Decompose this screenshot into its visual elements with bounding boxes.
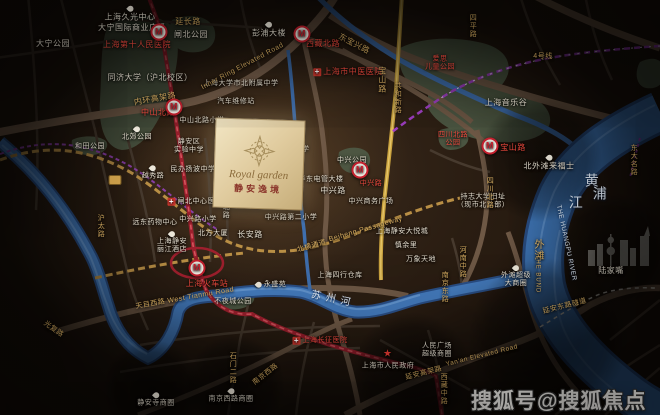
- river-suzhou-label-text: 苏州河: [310, 289, 357, 310]
- station-baoshan-label-text: 宝山路: [500, 143, 526, 153]
- poi-jingan-experimental-school: 静安区 实验中学: [174, 139, 204, 156]
- pin-icon: [152, 391, 160, 399]
- metro-station-baoshan: [482, 137, 499, 154]
- road-yanan-elevated-en: Yan'an Elevated Road: [445, 343, 519, 368]
- park-hetian-label: 和田公园: [75, 143, 105, 151]
- poi-jiuguang-center-text: 上海久光中心: [105, 13, 156, 23]
- road-xizang-middle-text: 西藏中路: [439, 373, 447, 405]
- park-zhabei-label-text: 闸北公园: [174, 30, 208, 40]
- poi-city-government: 上海市人民政府: [362, 351, 415, 370]
- park-beijiao-label-text: 北郊公园: [122, 133, 152, 141]
- road-tianmu-west-text: 天目西路 West Tianmu Road: [135, 286, 235, 312]
- metro-station-railway: [189, 260, 206, 277]
- poi-jingan-temple-cbd-text: 静安寺商圈: [137, 399, 175, 407]
- poi-chizhi-university-text: 持志大学旧址 （现市北总部）: [457, 194, 510, 211]
- poi-joy-city: 上海静安大悦城: [376, 228, 429, 236]
- metro-station-yanchang: [150, 24, 167, 41]
- cross-icon: [293, 337, 301, 345]
- park-buyecheng-label-text: 不夜城公园: [214, 298, 252, 306]
- map-canvas: 上海久光中心大宁国际商业广场上海第十人民医院延长路闸北公园大宁公园彭浦大楼西藏北…: [0, 0, 660, 415]
- road-hutai: 沪太路: [96, 214, 104, 238]
- pin-icon: [227, 387, 235, 395]
- road-yanan-elevated-en-text: Yan'an Elevated Road: [445, 343, 519, 368]
- road-inner-ring-cn-text: 内环高架路: [133, 91, 177, 108]
- road-yanchang-text: 延长路: [175, 17, 201, 27]
- park-zhongxing-label: 中兴公园: [337, 157, 367, 165]
- project-emblem-icon: [242, 133, 277, 168]
- metro-line4-label: 4号线: [533, 53, 552, 61]
- pin-icon: [126, 4, 134, 12]
- road-shimen-second-text: 石门二路: [228, 352, 236, 384]
- park-zhongxing-label-text: 中兴公园: [337, 157, 367, 165]
- pin-icon: [265, 20, 273, 28]
- road-siping: 四平路: [468, 14, 476, 38]
- metro-icon: [150, 24, 167, 41]
- road-guangfu: 光复路: [41, 320, 64, 340]
- road-tianmu-west: 天目西路 West Tianmu Road: [135, 286, 235, 312]
- watermark: 搜狐号@搜狐焦点宿州站: [471, 385, 660, 415]
- pin-icon: [512, 264, 520, 272]
- road-sichuan-north: 四川北路: [485, 177, 493, 209]
- poi-bund-cn: 外滩: [531, 239, 543, 261]
- road-sichuan-north-text: 四川北路: [485, 177, 493, 209]
- road-baoshan: 宝山路: [377, 67, 387, 94]
- park-sichuan-north-label: 四川北路 公园: [438, 132, 468, 149]
- road-changan-text: 长安路: [237, 230, 263, 240]
- poi-jingan-temple-cbd: 静安寺商圈: [137, 392, 175, 407]
- metro-icon: [166, 99, 183, 116]
- river-huangpu-char3: 江: [569, 195, 584, 212]
- road-nanjing-east: 南京东路: [440, 271, 448, 303]
- poi-nanjing-west-cbd-text: 南京西路商圈: [209, 395, 254, 403]
- poi-zhongxing-plaza: 中兴商务广场: [349, 198, 394, 206]
- bus-icon: [109, 175, 122, 185]
- metro-line4-label-text: 4号线: [533, 53, 552, 61]
- poi-shibei-school: 上海大学市北附属中学: [204, 80, 279, 88]
- poi-jingan-hotel: 上海静安 丽江酒店: [157, 231, 187, 255]
- poi-tongji-hubei-text: 同济大学（沪北校区）: [108, 73, 193, 83]
- station-baoshan-label: 宝山路: [500, 143, 526, 153]
- poi-lujiazui-label: 陆家嘴: [598, 266, 624, 276]
- road-henan-middle-text: 河南中路: [458, 246, 466, 278]
- poi-north-bund-raffles-text: 北外滩来福士: [524, 162, 575, 172]
- station-xizang-north-label-text: 西藏北路: [306, 39, 340, 49]
- poi-huadong-building-text: 华东电管大楼: [299, 176, 344, 184]
- park-hetian-label-text: 和田公园: [75, 143, 105, 151]
- poi-daning-plaza-text: 大宁国际商业广场: [98, 23, 166, 33]
- road-shimen-second: 石门二路: [228, 352, 236, 384]
- poi-daning-plaza: 大宁国际商业广场: [98, 23, 166, 33]
- river-huangpu-en-text: THE HUANGPU RIVER: [554, 204, 578, 281]
- cross-icon: [168, 198, 176, 206]
- river-huangpu-char2: 浦: [593, 186, 608, 203]
- road-henan-middle: 河南中路: [458, 246, 466, 278]
- river-huangpu-char1: 黄: [585, 173, 600, 190]
- poi-jiuguang-center: 上海久光中心: [105, 6, 156, 23]
- poi-mixc-world-text: 万象天地: [406, 256, 436, 264]
- pin-icon: [545, 153, 553, 161]
- poi-yangbo-school: 民办扬波中学: [171, 166, 216, 174]
- road-guangfu-text: 光复路: [41, 320, 64, 340]
- poi-zhongxing-second-primary: 中兴路第二小学: [265, 214, 318, 222]
- poi-changzheng-hospital-text: 上海长征医院: [303, 337, 348, 345]
- road-baoshan-text: 宝山路: [377, 67, 387, 94]
- poi-beifang-tower: 北方大厦: [198, 230, 228, 238]
- pin-icon: [149, 164, 157, 172]
- poi-zhongxing-primary-text: 中兴路小学: [179, 216, 217, 224]
- park-sichuan-north-label-text: 四川北路 公园: [438, 132, 468, 149]
- poi-zhongxing-primary: 中兴路小学: [179, 216, 217, 224]
- poi-bund-en-text: THE BUND: [533, 255, 540, 294]
- road-beiheng-en-text: Beiheng Passageway: [328, 215, 404, 244]
- pin-icon: [133, 125, 141, 133]
- project-name-cn: 静安逸境: [234, 181, 282, 196]
- poi-yangbo-school-text: 民办扬波中学: [171, 166, 216, 174]
- poi-sihang-warehouse-text: 上海四行仓库: [318, 272, 363, 280]
- poi-jingan-experimental-school-text: 静安区 实验中学: [174, 139, 204, 156]
- park-aisi-children-label: 爱思 儿童公园: [425, 56, 455, 73]
- poi-pharma-center-text: 远东药物中心: [133, 219, 178, 227]
- poi-bund-super-cbd-text: 外滩超级 大商圈: [501, 272, 531, 289]
- station-zhongxing-label: 中兴路: [360, 180, 383, 188]
- poi-bund-cn-text: 外滩: [531, 239, 543, 261]
- poi-peoples-square-cbd: 人民广场 超级商圈: [422, 343, 452, 360]
- poi-mixc-world: 万象天地: [406, 256, 436, 264]
- park-aisi-children-label-text: 爱思 儿童公园: [425, 56, 455, 73]
- river-huangpu-char3-text: 江: [569, 195, 584, 212]
- metro-station-zhongshan-north: [166, 99, 183, 116]
- pin-icon: [254, 281, 262, 289]
- road-nanjing-east-text: 南京东路: [440, 271, 448, 303]
- poi-auto-repair-text: 汽车维修站: [217, 98, 255, 106]
- poi-shibei-school-text: 上海大学市北附属中学: [204, 80, 279, 88]
- poi-tcm-hospital-text: 上海市中医医院: [323, 67, 383, 77]
- poi-shenyuli: 慎余里: [395, 242, 418, 250]
- road-dongdaming-text: 东大名路: [629, 144, 637, 176]
- river-huangpu-char2-text: 浦: [593, 186, 608, 203]
- station-xizang-north-label: 西藏北路: [306, 39, 340, 49]
- road-dongdaming: 东大名路: [629, 144, 637, 176]
- park-daning-label: 大宁公园: [36, 39, 70, 49]
- road-dongbaoxing-text: 东宝兴路: [337, 32, 372, 56]
- project-name-en: Royal garden: [229, 167, 289, 181]
- poi-tenth-hospital-text: 上海第十人民医院: [103, 40, 171, 50]
- river-huangpu-char1-text: 黄: [585, 173, 600, 190]
- road-hutai-text: 沪太路: [96, 214, 104, 238]
- park-buyecheng-label: 不夜城公园: [214, 298, 252, 306]
- river-huangpu-en: THE HUANGPU RIVER: [554, 204, 578, 281]
- poi-joy-city-text: 上海静安大悦城: [376, 228, 429, 236]
- poi-tongji-hubei: 同济大学（沪北校区）: [108, 73, 193, 83]
- poi-yuexiu-road: 越秀路: [142, 165, 165, 180]
- metro-icon: [189, 260, 206, 277]
- metro-station-zhongxing: [352, 162, 369, 179]
- road-nanjing-west: 南京西路: [252, 362, 281, 387]
- road-zhongxing: 中兴路: [320, 186, 346, 196]
- road-yanan-elevated-cn-text: 延安高架路: [405, 365, 443, 382]
- road-yanan-tunnel: 延安东路隧道: [542, 297, 588, 316]
- station-railway-label: 上海火车站: [186, 279, 229, 289]
- metro-icon: [482, 137, 499, 154]
- road-nanjing-west-text: 南京西路: [252, 362, 281, 387]
- poi-nanjing-west-cbd: 南京西路商圈: [209, 388, 254, 403]
- road-changan: 长安路: [237, 230, 263, 240]
- road-inner-ring-en: Inner Ring Elevated Road: [200, 42, 285, 93]
- poi-peoples-square-cbd-text: 人民广场 超级商圈: [422, 343, 452, 360]
- pin-icon: [168, 230, 176, 238]
- poi-pengpu-building-text: 彭浦大楼: [252, 29, 286, 39]
- road-beiheng-cn: 北横通道: [296, 239, 327, 255]
- road-beiheng-en: Beiheng Passageway: [328, 215, 404, 244]
- poi-chizhi-university: 持志大学旧址 （现市北总部）: [457, 194, 510, 211]
- poi-shenyuli-text: 慎余里: [395, 242, 418, 250]
- road-zhongxing-text: 中兴路: [320, 186, 346, 196]
- road-yanan-elevated-cn: 延安高架路: [405, 365, 443, 382]
- station-railway-label-text: 上海火车站: [186, 279, 229, 289]
- station-zhongshan-north-label-text: 中山北路: [141, 108, 175, 118]
- poi-zhongxing-plaza-text: 中兴商务广场: [349, 198, 394, 206]
- poi-tenth-hospital: 上海第十人民医院: [103, 40, 171, 50]
- poi-changzheng-hospital: 上海长征医院: [293, 337, 348, 345]
- metro-icon: [352, 162, 369, 179]
- road-inner-ring-en-text: Inner Ring Elevated Road: [200, 42, 285, 93]
- road-inner-ring-cn: 内环高架路: [133, 91, 177, 108]
- park-beijiao-label: 北郊公园: [122, 126, 152, 141]
- star-icon: [383, 351, 393, 361]
- poi-tcm-hospital: 上海市中医医院: [313, 67, 383, 77]
- map-labels-layer: 上海久光中心大宁国际商业广场上海第十人民医院延长路闸北公园大宁公园彭浦大楼西藏北…: [0, 0, 660, 415]
- road-beiheng-cn-text: 北横通道: [296, 239, 327, 255]
- park-daning-label-text: 大宁公园: [36, 39, 70, 49]
- road-xizang-middle: 西藏中路: [439, 373, 447, 405]
- road-gonghexin-text: 共和新路: [393, 82, 401, 114]
- poi-music-valley: 上海音乐谷: [485, 98, 528, 108]
- poi-auto-repair: 汽车维修站: [217, 98, 255, 106]
- poi-yuexiu-road-text: 越秀路: [142, 172, 165, 180]
- metro-icon: [294, 26, 311, 43]
- poi-north-bund-raffles: 北外滩来福士: [524, 155, 575, 172]
- poi-pengpu-building: 彭浦大楼: [252, 22, 286, 39]
- poi-pharma-center: 远东药物中心: [133, 219, 178, 227]
- metro-station-xizang-north: [294, 26, 311, 43]
- poi-jingan-hotel-text: 上海静安 丽江酒店: [157, 238, 187, 255]
- cross-icon: [313, 68, 321, 76]
- poi-yongshengyuan: 永盛苑: [256, 281, 287, 289]
- station-zhongshan-north-label: 中山北路: [141, 108, 175, 118]
- bus-stop-marker: [109, 175, 122, 185]
- road-yanchang: 延长路: [175, 17, 201, 27]
- road-yanan-tunnel-text: 延安东路隧道: [542, 297, 588, 316]
- road-siping-text: 四平路: [468, 14, 476, 38]
- poi-huadong-building: 华东电管大楼: [299, 176, 344, 184]
- station-zhongxing-label-text: 中兴路: [360, 180, 383, 188]
- poi-zhongxing-second-primary-text: 中兴路第二小学: [265, 214, 318, 222]
- road-gonghexin: 共和新路: [393, 82, 401, 114]
- poi-yongshengyuan-text: 永盛苑: [264, 281, 287, 289]
- river-suzhou-label: 苏州河: [310, 289, 357, 310]
- poi-beifang-tower-text: 北方大厦: [198, 230, 228, 238]
- park-zhabei-label: 闸北公园: [174, 30, 208, 40]
- project-marker: Royal garden 静安逸境: [212, 117, 305, 210]
- poi-city-government-text: 上海市人民政府: [362, 362, 415, 370]
- poi-music-valley-text: 上海音乐谷: [485, 98, 528, 108]
- poi-lujiazui-label-text: 陆家嘴: [598, 266, 624, 276]
- poi-bund-en: THE BUND: [533, 255, 540, 294]
- poi-bund-super-cbd: 外滩超级 大商圈: [501, 265, 531, 289]
- road-dongbaoxing: 东宝兴路: [337, 32, 372, 56]
- poi-sihang-warehouse: 上海四行仓库: [318, 272, 363, 280]
